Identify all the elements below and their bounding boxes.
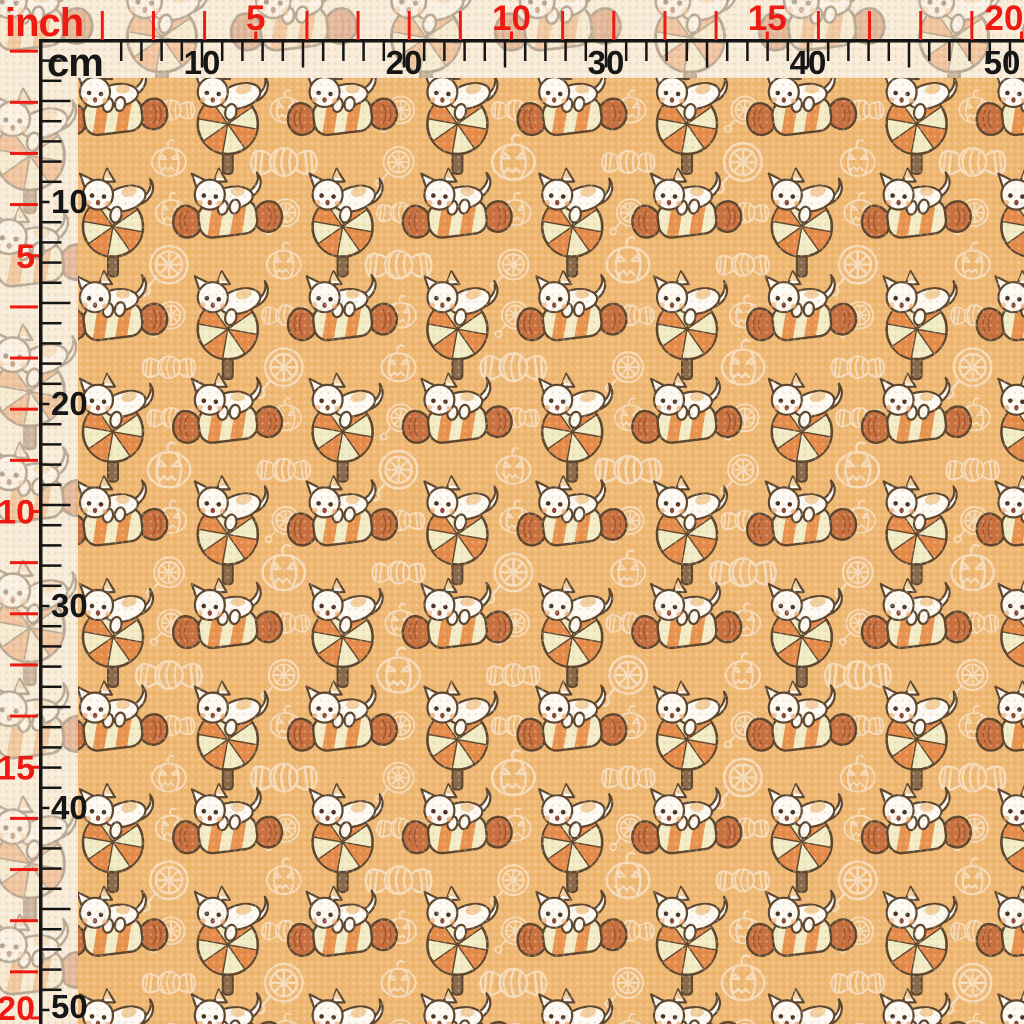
inch-tick xyxy=(817,11,820,40)
top-ruler-bar xyxy=(39,39,1024,43)
cm-tick xyxy=(43,443,62,446)
cm-tick xyxy=(484,43,487,62)
cm-tick xyxy=(43,706,71,709)
cm-tick xyxy=(43,484,62,487)
cm-tick xyxy=(43,766,62,769)
cm-tick xyxy=(625,43,628,62)
cm-tick xyxy=(43,827,62,830)
inch-number: 15 xyxy=(0,749,35,787)
inch-tick xyxy=(612,11,615,40)
cm-tick xyxy=(43,847,62,850)
inch-tick xyxy=(10,101,38,104)
cm-tick xyxy=(766,43,769,62)
cm-tick xyxy=(160,43,163,62)
cm-tick xyxy=(544,43,547,62)
cm-tick xyxy=(43,625,62,628)
cm-tick xyxy=(43,80,62,83)
cm-tick xyxy=(261,43,264,62)
cm-tick xyxy=(43,564,62,567)
cm-tick xyxy=(43,241,62,244)
cm-tick xyxy=(362,43,365,62)
cm-tick xyxy=(241,43,244,62)
inch-tick xyxy=(10,203,38,206)
inch-tick xyxy=(10,919,38,922)
left-ruler-bar xyxy=(39,39,43,1024)
cm-tick xyxy=(746,43,749,62)
cm-number: 40 xyxy=(51,789,88,826)
cm-tick xyxy=(524,43,527,62)
cm-tick xyxy=(43,504,71,507)
cm-tick xyxy=(706,43,709,68)
cm-number: 40 xyxy=(790,44,827,81)
left-ruler: 10203040505101520 xyxy=(0,39,88,1024)
inch-tick xyxy=(10,970,38,973)
cm-tick xyxy=(43,160,62,163)
inch-tick xyxy=(101,11,104,40)
cm-tick xyxy=(43,362,62,365)
cm-number: 20 xyxy=(386,44,423,81)
inch-tick xyxy=(203,11,206,40)
inch-tick xyxy=(305,11,308,40)
inch-number: 5 xyxy=(246,0,265,38)
cm-tick xyxy=(443,43,446,62)
inch-tick xyxy=(868,11,871,40)
cm-tick xyxy=(948,43,951,62)
inch-tick xyxy=(152,11,155,40)
cm-tick xyxy=(43,403,50,406)
cm-tick xyxy=(43,928,62,931)
cm-tick xyxy=(43,807,50,810)
inch-tick xyxy=(357,11,360,40)
inch-tick xyxy=(408,11,411,40)
cm-tick xyxy=(43,302,71,305)
rulers-layer: 1020304050510152010203040505101520 xyxy=(0,0,1024,1024)
inch-tick xyxy=(10,561,38,564)
inch-tick xyxy=(10,357,38,360)
cm-tick xyxy=(43,645,62,648)
cm-number: 50 xyxy=(51,988,88,1024)
cm-tick xyxy=(43,686,62,689)
cm-tick xyxy=(43,908,71,911)
cm-tick xyxy=(43,524,62,527)
inch-tick xyxy=(561,11,564,40)
cm-tick xyxy=(282,43,285,62)
inch-tick xyxy=(10,663,38,666)
inch-tick xyxy=(10,868,38,871)
inch-tick xyxy=(663,11,666,40)
cm-tick xyxy=(43,463,62,466)
cm-number: 30 xyxy=(51,587,88,624)
cm-tick xyxy=(726,43,729,62)
inch-tick xyxy=(459,11,462,40)
cm-tick xyxy=(43,120,62,123)
cm-tick xyxy=(302,43,305,68)
cm-tick xyxy=(43,59,62,62)
cm-tick xyxy=(43,544,62,547)
cm-tick xyxy=(43,1009,50,1012)
cm-tick xyxy=(43,605,50,608)
cm-tick xyxy=(43,968,62,971)
cm-tick xyxy=(888,43,891,62)
inch-number: 20 xyxy=(985,0,1024,38)
cm-tick xyxy=(43,423,62,426)
cm-tick xyxy=(463,43,466,62)
cm-tick xyxy=(43,726,62,729)
cm-tick xyxy=(43,140,62,143)
inch-number: 5 xyxy=(16,238,35,276)
inch-tick xyxy=(10,715,38,718)
cm-tick xyxy=(43,888,62,891)
cm-tick xyxy=(43,201,50,204)
inch-number: 15 xyxy=(748,0,787,38)
cm-tick xyxy=(827,43,830,62)
cm-tick xyxy=(968,43,971,62)
cm-tick xyxy=(43,342,62,345)
cm-number: 50 xyxy=(984,44,1021,81)
inch-tick xyxy=(919,11,922,40)
inch-number: 20 xyxy=(0,990,35,1024)
inch-tick xyxy=(10,305,38,308)
cm-number: 10 xyxy=(184,44,221,81)
inch-tick xyxy=(10,50,38,53)
cm-tick xyxy=(221,43,224,62)
cm-tick xyxy=(43,746,62,749)
inch-tick xyxy=(10,459,38,462)
cm-number: 20 xyxy=(51,385,88,422)
cm-tick xyxy=(322,43,325,62)
cm-tick xyxy=(43,948,62,951)
cm-tick xyxy=(43,261,62,264)
fabric-scale-preview: 1020304050510152010203040505101520 inch … xyxy=(0,0,1024,1024)
cm-tick xyxy=(504,43,507,68)
inch-tick xyxy=(10,152,38,155)
inch-tick xyxy=(10,817,38,820)
inch-tick xyxy=(10,612,38,615)
cm-tick xyxy=(423,43,426,62)
cm-tick xyxy=(43,322,62,325)
cm-tick xyxy=(43,221,62,224)
cm-tick xyxy=(43,282,62,285)
cm-tick xyxy=(665,43,668,62)
cm-tick xyxy=(43,867,62,870)
inch-number: 10 xyxy=(0,494,35,532)
cm-tick xyxy=(928,43,931,62)
cm-tick xyxy=(908,43,911,68)
cm-number: 30 xyxy=(588,44,625,81)
cm-tick xyxy=(140,43,143,62)
top-ruler: 10203040505101520 xyxy=(39,0,1024,81)
cm-tick xyxy=(120,43,123,62)
inch-tick xyxy=(970,11,973,40)
cm-tick xyxy=(847,43,850,62)
cm-tick xyxy=(645,43,648,62)
inch-tick xyxy=(10,408,38,411)
cm-tick xyxy=(43,100,71,103)
cm-tick xyxy=(43,665,62,668)
cm-tick xyxy=(867,43,870,62)
cm-tick xyxy=(686,43,689,62)
cm-tick xyxy=(564,43,567,62)
inch-tick xyxy=(715,11,718,40)
cm-tick xyxy=(342,43,345,62)
cm-number: 10 xyxy=(51,183,88,220)
inch-number: 10 xyxy=(492,0,531,38)
